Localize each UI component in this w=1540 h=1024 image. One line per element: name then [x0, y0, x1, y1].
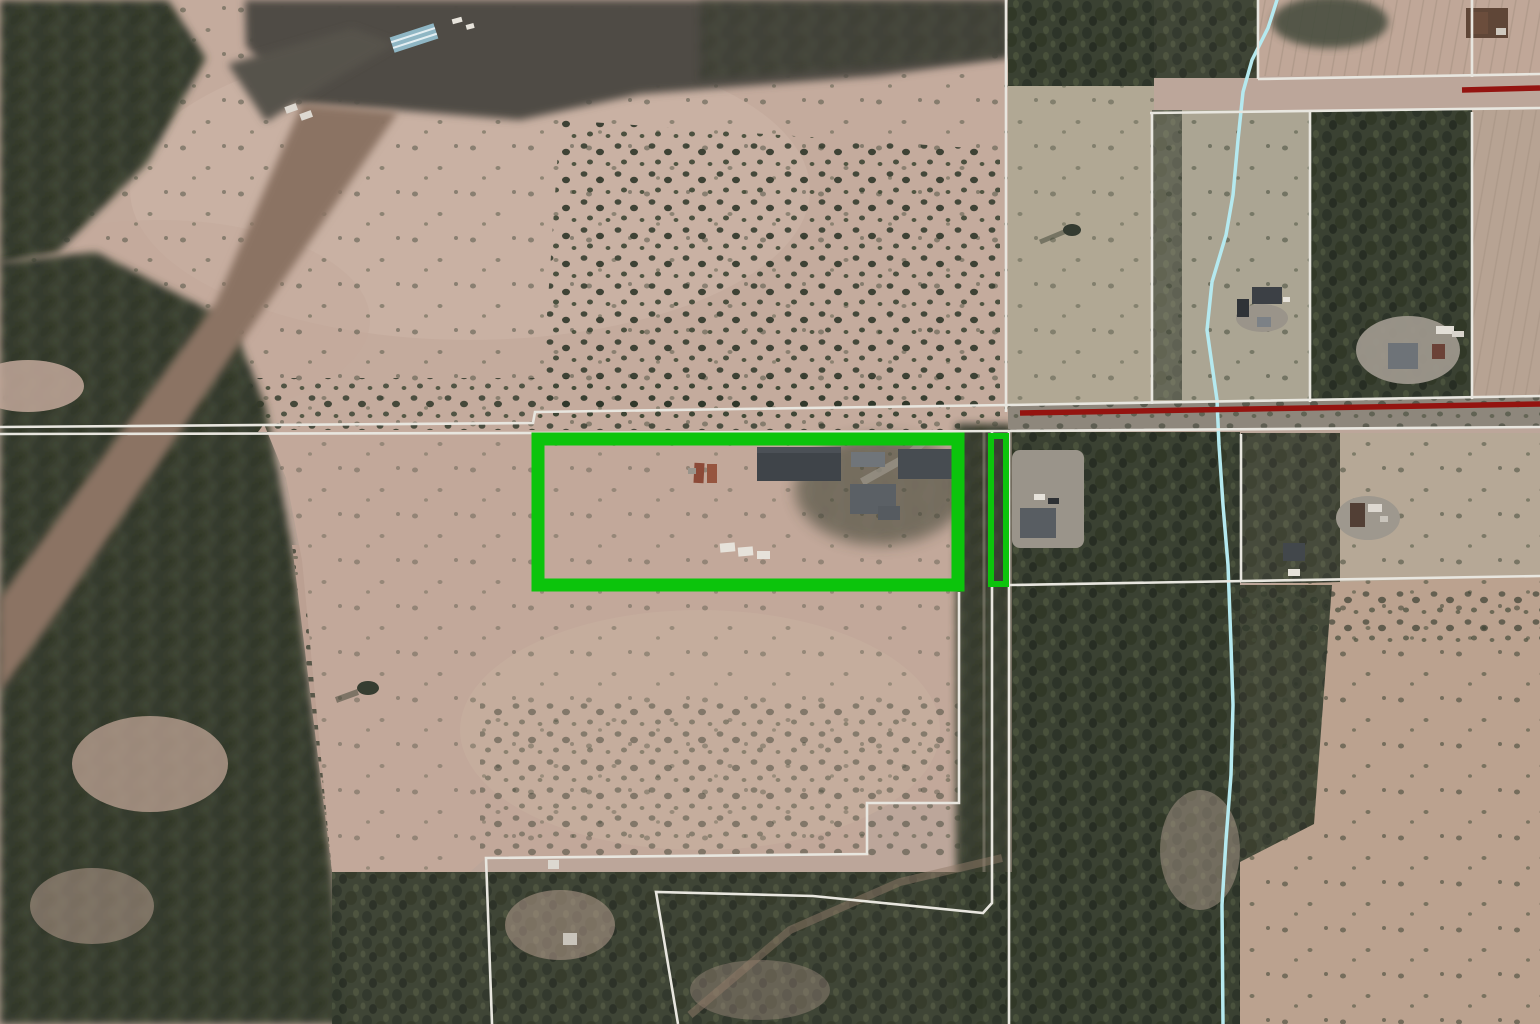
forest-patch: [1008, 0, 1154, 88]
vehicle: [1496, 28, 1506, 35]
vehicle: [1048, 498, 1059, 504]
vehicle: [1034, 494, 1045, 500]
small-shed: [563, 933, 577, 945]
tree-speckle-cluster: [540, 120, 1000, 420]
white-truck: [720, 542, 736, 552]
gray-shed: [1257, 317, 1271, 327]
house: [1252, 287, 1282, 304]
white-truck: [738, 546, 754, 556]
forest-patch: [1152, 0, 1258, 78]
vehicle: [1288, 569, 1300, 576]
barn: [1350, 503, 1365, 527]
road-centerline: [1462, 88, 1540, 90]
small-shed: [1380, 516, 1388, 522]
tree-speckle-cluster: [1240, 588, 1540, 646]
red-container: [707, 464, 717, 483]
house: [1020, 508, 1056, 538]
field-furrows: [1472, 110, 1540, 400]
aerial-map-svg: [0, 0, 1540, 1024]
camper: [1452, 331, 1464, 337]
house: [1388, 343, 1418, 369]
camper: [1436, 326, 1454, 334]
barn: [1432, 344, 1445, 359]
dark-outbuilding: [898, 449, 952, 479]
forest-clearing: [72, 716, 228, 812]
white-truck: [757, 551, 770, 559]
vehicle: [1283, 297, 1290, 302]
gray-shed: [851, 452, 885, 467]
house: [1283, 543, 1305, 561]
forest-bottom-middle: [332, 872, 1012, 1024]
outbuilding: [1237, 299, 1249, 317]
tree-speckle-cluster: [480, 700, 960, 858]
forest-clearing: [30, 868, 154, 944]
small-shed: [548, 860, 559, 869]
lone-tree: [1063, 224, 1081, 236]
homestead-clearing: [1336, 496, 1400, 540]
forest-clearing: [505, 890, 615, 960]
tree-row: [1152, 110, 1182, 400]
trailer: [1368, 504, 1382, 512]
field-shrub-speckle: [1008, 86, 1154, 406]
lone-tree: [357, 681, 379, 695]
map-canvas[interactable]: [0, 0, 1540, 1024]
forest-clearing: [690, 960, 830, 1020]
small-shed: [688, 468, 696, 474]
roof-edge: [757, 447, 841, 453]
house-wing: [878, 506, 900, 520]
